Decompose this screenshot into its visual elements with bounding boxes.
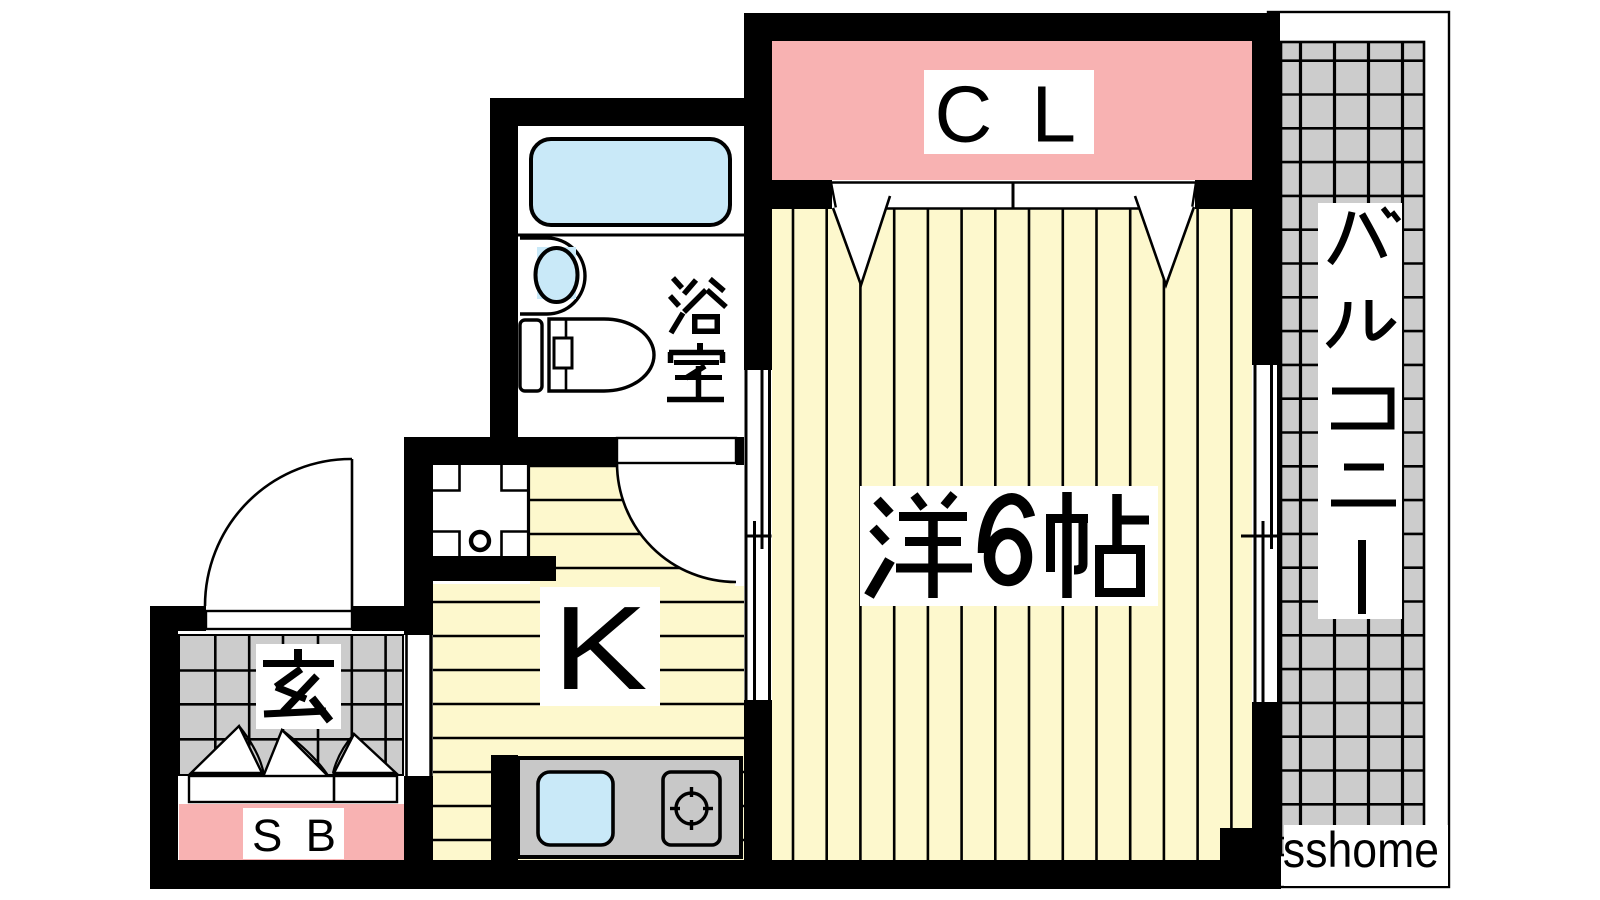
svg-text:K: K <box>553 582 648 715</box>
svg-text:isshome: isshome <box>1273 822 1439 878</box>
svg-text:S B: S B <box>252 810 336 861</box>
svg-text:C L: C L <box>935 70 1085 159</box>
